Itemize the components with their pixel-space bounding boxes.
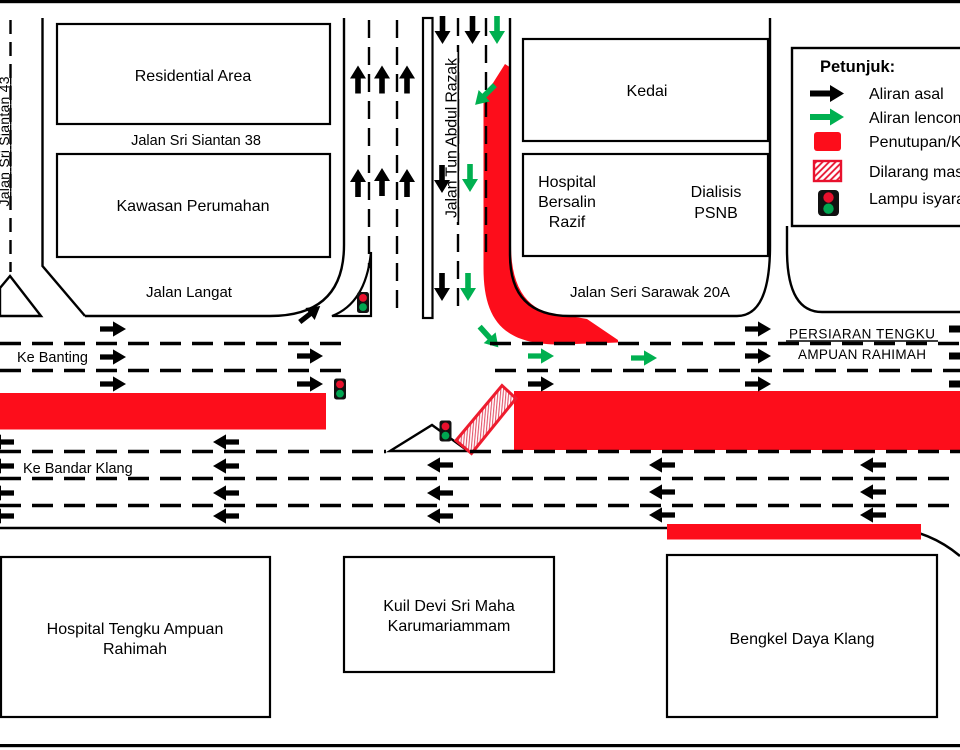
svg-text:Dialisis: Dialisis xyxy=(691,184,742,201)
svg-text:Lampu isyarat: Lampu isyarat xyxy=(869,191,960,208)
svg-text:Jalan Sri Siantan 43: Jalan Sri Siantan 43 xyxy=(0,76,12,206)
svg-text:Ke Bandar Klang: Ke Bandar Klang xyxy=(23,461,133,477)
svg-text:Dilarang masuk: Dilarang masuk xyxy=(869,164,960,181)
svg-text:Residential Area: Residential Area xyxy=(135,68,252,85)
svg-text:Jalan Sri Siantan 38: Jalan Sri Siantan 38 xyxy=(131,133,261,149)
svg-text:Razif: Razif xyxy=(549,214,586,231)
svg-text:Kawasan Perumahan: Kawasan Perumahan xyxy=(117,198,270,215)
svg-text:PERSIARAN TENGKU: PERSIARAN TENGKU xyxy=(789,327,935,342)
svg-text:PSNB: PSNB xyxy=(694,205,738,222)
svg-text:Penutupan/Kerja: Penutupan/Kerja xyxy=(869,134,960,151)
svg-text:Bengkel Daya Klang: Bengkel Daya Klang xyxy=(730,631,875,648)
svg-text:Rahimah: Rahimah xyxy=(103,641,167,658)
svg-text:Hospital Tengku Ampuan: Hospital Tengku Ampuan xyxy=(47,621,224,638)
svg-text:Jalan Langat: Jalan Langat xyxy=(146,284,233,301)
svg-text:Hospital: Hospital xyxy=(538,174,596,191)
svg-text:Aliran lencongan: Aliran lencongan xyxy=(869,110,960,127)
svg-text:Karumariammam: Karumariammam xyxy=(388,618,511,635)
svg-text:Ke Banting: Ke Banting xyxy=(17,350,88,366)
svg-text:AMPUAN RAHIMAH: AMPUAN RAHIMAH xyxy=(798,347,926,362)
svg-text:Bersalin: Bersalin xyxy=(538,194,596,211)
svg-text:Petunjuk:: Petunjuk: xyxy=(820,58,895,76)
svg-text:Kedai: Kedai xyxy=(627,83,668,100)
svg-text:Aliran asal: Aliran asal xyxy=(869,86,944,103)
svg-text:Jalan Tun Abdul Razak: Jalan Tun Abdul Razak xyxy=(444,57,461,218)
svg-text:Kuil Devi Sri Maha: Kuil Devi Sri Maha xyxy=(383,598,515,615)
svg-text:Jalan Seri Sarawak 20A: Jalan Seri Sarawak 20A xyxy=(570,284,730,301)
